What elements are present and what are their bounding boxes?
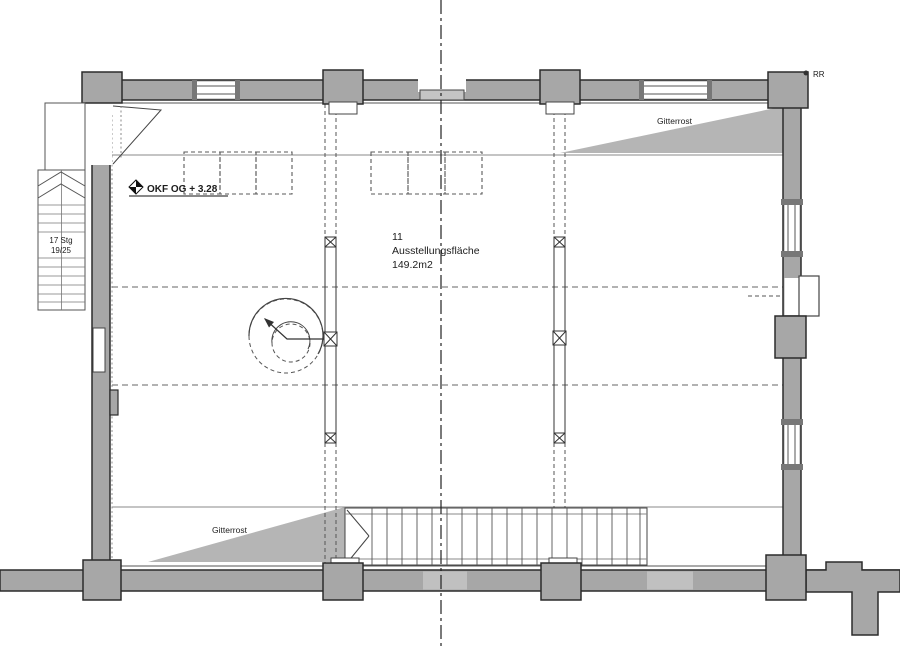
skylight-openings (184, 152, 482, 194)
stair-bottom (345, 508, 647, 565)
interior-lines (110, 103, 783, 568)
level-marker: OKF OG + 3.28 (129, 180, 228, 196)
room-area-label: 149.2m2 (392, 259, 433, 271)
stair-left-exterior (38, 103, 85, 310)
floor-plan-canvas: OKF OG + 3.28 RR 11 Ausstellungsfläche 1… (0, 0, 900, 649)
stair-left-label: 17 Stg 19/25 (49, 236, 72, 255)
level-marker-label: OKF OG + 3.28 (147, 184, 218, 195)
door-exterior-box (799, 276, 819, 316)
grating-top-shape (560, 106, 785, 153)
pilaster-bottom-1 (323, 563, 363, 600)
room-label: 11 Ausstellungsfläche 149.2m2 (392, 231, 480, 271)
pilaster-bottom-left (83, 560, 121, 600)
pilaster-bottom-2 (541, 563, 581, 600)
column-strip-right (553, 104, 566, 566)
hoist-swing-symbol (249, 298, 337, 373)
rr-marker-label: RR (813, 70, 825, 79)
grating-area-top (560, 106, 785, 153)
grating-top-label: Gitterrost (657, 116, 693, 126)
stair-steps-label: 17 Stg (49, 236, 72, 245)
floor-plan-drawing: OKF OG + 3.28 RR 11 Ausstellungsfläche 1… (0, 0, 900, 649)
dashed-grid-lines (112, 115, 783, 566)
wall-extension-right (806, 562, 900, 635)
room-number-label: 11 (392, 231, 403, 243)
room-name-label: Ausstellungsfläche (392, 245, 480, 257)
pilaster-top-right (768, 72, 808, 108)
pilaster-top-1 (323, 70, 363, 104)
pilaster-top-2 (540, 70, 580, 104)
grating-bottom-label: Gitterrost (212, 525, 248, 535)
pilaster-bottom-right (766, 555, 806, 600)
stair-dim-label: 19/25 (51, 246, 72, 255)
pilaster-top-left (82, 72, 122, 103)
